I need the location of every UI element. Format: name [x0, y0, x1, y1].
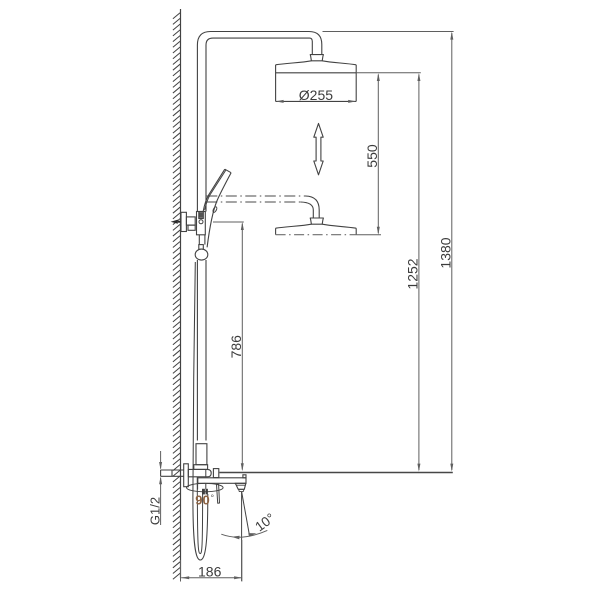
svg-text:G1/2: G1/2 [147, 497, 162, 525]
svg-text:Ø255: Ø255 [299, 87, 333, 103]
svg-text:1380: 1380 [438, 237, 454, 268]
svg-text:°: ° [210, 493, 214, 503]
svg-text:186: 186 [198, 564, 222, 580]
svg-text:786: 786 [228, 335, 244, 359]
svg-text:1252: 1252 [405, 258, 421, 289]
svg-text:90: 90 [195, 492, 209, 507]
svg-text:550: 550 [364, 144, 380, 168]
